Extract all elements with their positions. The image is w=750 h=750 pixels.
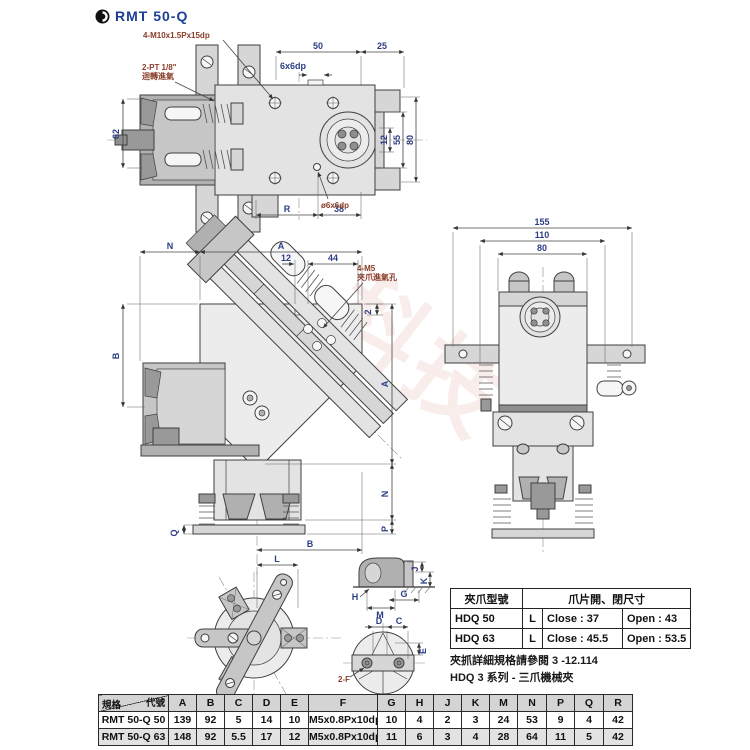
dim-N-right: N: [380, 491, 390, 498]
note-line-1: 夾抓詳細規格請參閱 3 -12.114: [450, 652, 598, 668]
corner-label-spec: 規格: [102, 697, 121, 711]
callout-4m5: 4-M5: [357, 264, 376, 273]
dim-80: 80: [405, 135, 415, 145]
dim-D: D: [376, 616, 383, 626]
base-plate: [492, 529, 594, 538]
section-bullet-icon: [95, 9, 110, 24]
dim-B-bottom: B: [307, 539, 314, 549]
col-J: J: [434, 695, 462, 712]
dim-6x6dp: 6x6dp: [280, 61, 307, 71]
dim-H: H: [352, 592, 359, 602]
dim-25: 25: [377, 41, 387, 51]
dim-44: 44: [328, 253, 338, 263]
dim-R: R: [284, 204, 291, 214]
spec-row-50: RMT 50-Q 50 139 92 5 14 10 M5x0.8Px10dp …: [99, 712, 633, 729]
dim-C: C: [396, 616, 403, 626]
jaw-close: Close : 45.5: [543, 629, 623, 649]
dim-12-slot: 12: [281, 253, 291, 263]
jaw-type: L: [523, 629, 543, 649]
col-P: P: [547, 695, 575, 712]
note-line-2: HDQ 3 系列 - 三爪機械夾: [450, 669, 573, 685]
dim-62: 62: [111, 129, 121, 139]
col-D: D: [253, 695, 281, 712]
section-header: RMT 50-Q: [95, 8, 188, 24]
jaw-model: HDQ 50: [451, 609, 523, 629]
dim-N-top: N: [167, 241, 174, 251]
catalog-page: 科技 RMT 50-Q: [0, 0, 750, 750]
dim-E: E: [418, 648, 428, 654]
spec-table-header: 代號 規格 A B C D E F G H J K M N P Q R: [99, 695, 633, 712]
dim-12: 12: [379, 135, 389, 145]
dim-P: P: [380, 526, 390, 532]
col-K: K: [462, 695, 490, 712]
col-G: G: [378, 695, 406, 712]
col-F: F: [309, 695, 378, 712]
col-R: R: [604, 695, 633, 712]
col-N: N: [518, 695, 547, 712]
dim-A-top: A: [278, 241, 285, 251]
callout-port-spec: 2-PT 1/8": [142, 63, 177, 72]
callout-4m5-label: 夾爪進氣孔: [357, 272, 397, 282]
callout-hole: ø6x6dp: [321, 201, 349, 210]
callout-2F: 2-F: [338, 675, 350, 684]
side-view-drawing: 155 110 80: [435, 215, 665, 567]
dim-A-right: A: [380, 380, 390, 387]
gripper-chuck: [115, 95, 215, 185]
page-title: RMT 50-Q: [115, 8, 188, 24]
jaw-table-row: HDQ 63 L Close : 45.5 Open : 53.5: [451, 629, 691, 649]
dim-110: 110: [535, 230, 550, 240]
spec-row-63: RMT 50-Q 63 148 92 5.5 17 12 M5x0.8Px10d…: [99, 729, 633, 746]
dim-J: J: [410, 566, 420, 571]
col-E: E: [281, 695, 309, 712]
callout-port-label: 迴轉進氣: [141, 71, 174, 81]
jaw-table-row: HDQ 50 L Close : 37 Open : 43: [451, 609, 691, 629]
rotary-flange: [320, 112, 376, 168]
chuck-view-drawing: L: [185, 550, 345, 712]
jaw-close: Close : 37: [543, 609, 623, 629]
bottom-column: [193, 460, 305, 534]
dim-2: 2: [363, 309, 373, 314]
jaw-table-header-model: 夾爪型號: [451, 589, 523, 609]
jaw-table-header: 夾爪型號 爪片開、閉尺寸: [451, 589, 691, 609]
model-cell: RMT 50-Q 50: [99, 712, 169, 729]
col-H: H: [406, 695, 434, 712]
dim-L: L: [274, 554, 280, 564]
dim-50: 50: [313, 41, 323, 51]
dim-155: 155: [534, 217, 549, 227]
top-view-drawing: 50 25 6x6dp 12 55 80 62 R 38 4-M10x1.5Px…: [95, 28, 435, 240]
col-M: M: [490, 695, 518, 712]
col-Q: Q: [575, 695, 604, 712]
callout-bolts: 4-M10x1.5Px15dp: [143, 31, 210, 40]
col-A: A: [169, 695, 197, 712]
dim-Q: Q: [169, 529, 179, 536]
side-flange: [520, 297, 560, 337]
jaw-open: Open : 53.5: [623, 629, 691, 649]
dome-nuts: [509, 272, 574, 292]
jaw-table-header-size: 爪片開、閉尺寸: [523, 589, 691, 609]
dim-K: K: [419, 577, 429, 584]
dim-G: G: [400, 589, 407, 599]
angled-view-drawing: N A 12 44 2 4-M5 夾爪進氣孔 B A N P Q B: [105, 232, 435, 577]
model-cell: RMT 50-Q 63: [99, 729, 169, 746]
jaw-open: Open : 43: [623, 609, 691, 629]
dim-55: 55: [392, 135, 402, 145]
corner-label-code: 代號: [146, 695, 165, 709]
col-B: B: [197, 695, 225, 712]
dim-80-side: 80: [537, 243, 547, 253]
col-C: C: [225, 695, 253, 712]
spec-table-corner: 代號 規格: [99, 695, 169, 712]
spec-table: 代號 規格 A B C D E F G H J K M N P Q R: [98, 694, 633, 746]
jaw-type: L: [523, 609, 543, 629]
jaw-model: HDQ 63: [451, 629, 523, 649]
dim-B-left: B: [111, 352, 121, 359]
jaw-size-table: 夾爪型號 爪片開、閉尺寸 HDQ 50 L Close : 37 Open : …: [450, 588, 691, 649]
